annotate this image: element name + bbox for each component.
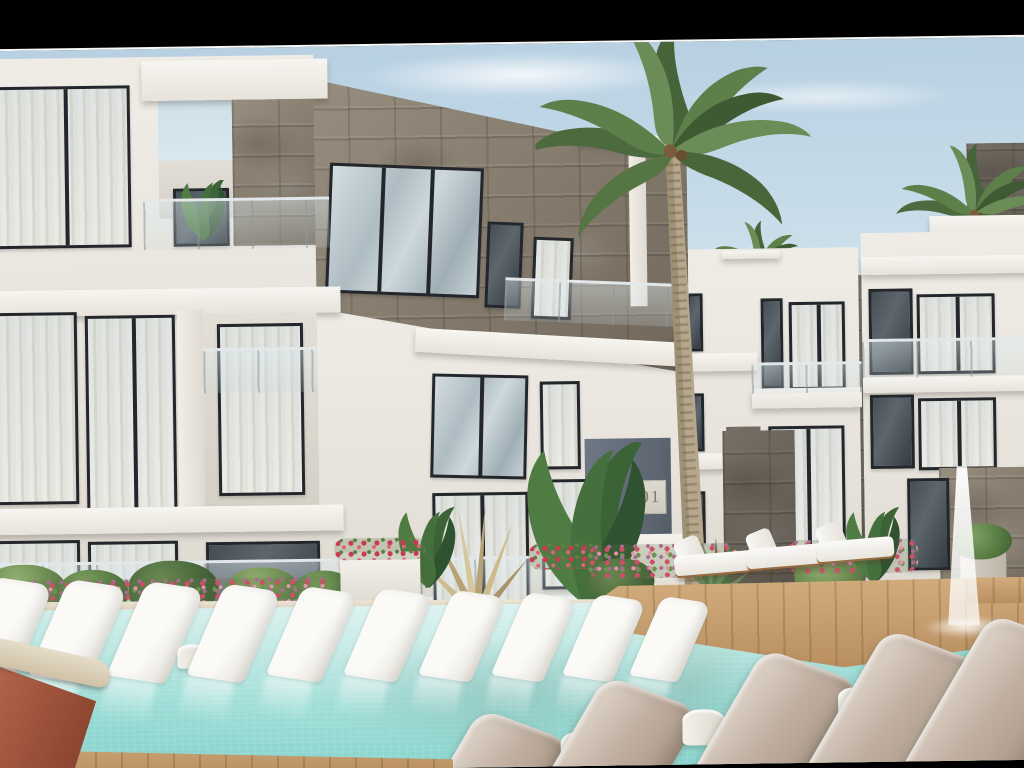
window-mullion (64, 89, 70, 245)
floor-slab (0, 504, 344, 535)
screenshot-frame: 01 (0, 0, 1024, 768)
window (325, 163, 484, 299)
window-mullion (131, 318, 138, 508)
wooden-lounger (0, 37, 1024, 52)
planter-flowers (334, 537, 426, 560)
glass-railing (203, 347, 318, 394)
portal-beam (141, 59, 328, 102)
glass-railing (862, 337, 1024, 378)
window-mullion (478, 377, 484, 475)
window (85, 315, 178, 512)
wooden-lounger (0, 37, 1024, 52)
parapet-slab (861, 255, 1024, 275)
window-mullion (377, 168, 386, 292)
window (0, 312, 79, 505)
glass-railing (143, 197, 330, 251)
window-mullion (426, 169, 435, 293)
window (0, 85, 132, 249)
resort-rendering-photo: 01 (0, 35, 1024, 768)
facade-pier (177, 310, 206, 512)
window-mullion (957, 401, 962, 467)
wooden-lounger (0, 37, 1024, 52)
window (870, 394, 915, 469)
window (918, 397, 997, 470)
